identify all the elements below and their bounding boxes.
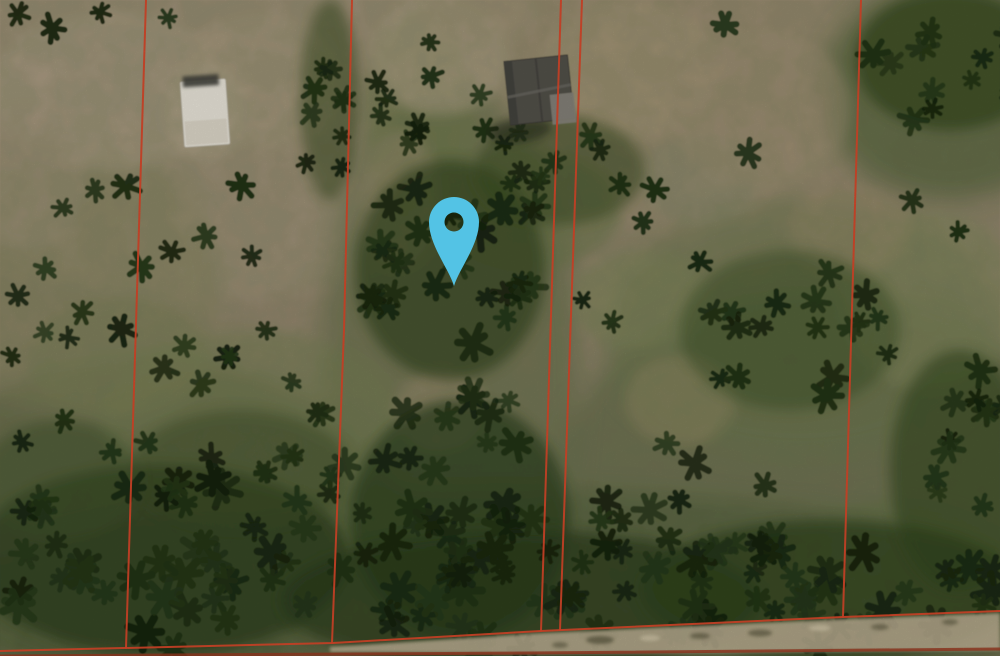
satellite-map-view	[0, 0, 1000, 656]
location-pin-icon[interactable]	[428, 196, 480, 288]
terrain-imagery	[0, 0, 1000, 656]
location-pin-shape	[429, 197, 479, 286]
satellite-map-canvas[interactable]	[0, 0, 1000, 656]
grain-overlay	[0, 0, 1000, 656]
